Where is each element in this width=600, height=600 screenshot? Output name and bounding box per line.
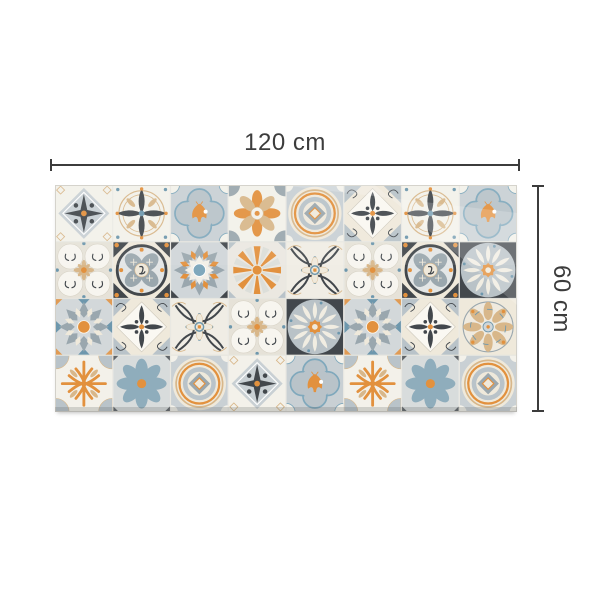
tile-rosette-orange <box>344 299 401 356</box>
tile-moth <box>278 347 352 412</box>
rug-tiles-svg <box>55 185 517 412</box>
tile-star-diamond <box>229 355 286 412</box>
tile-medallion <box>164 348 234 412</box>
tile-medallion <box>453 348 517 412</box>
tile-blue-daisy <box>402 355 459 412</box>
tile-diamond-scroll <box>402 299 459 356</box>
height-dimension-line <box>537 185 539 412</box>
tile-rosette-orange <box>56 299 113 356</box>
tile-cream-daisy <box>287 299 344 356</box>
width-dimension-tick-right <box>518 159 520 171</box>
tile-coral-cross <box>344 355 401 412</box>
tile-arcs-cross <box>171 299 228 356</box>
tile-diamond-scroll <box>113 299 170 356</box>
tile-coral-cross <box>56 355 113 412</box>
rug-bottom-shadow <box>55 407 517 412</box>
height-dimension-tick-bottom <box>532 410 544 412</box>
height-dimension: 60 cm <box>545 185 577 412</box>
tile-blue-daisy <box>113 355 170 412</box>
width-dimension-line <box>50 164 520 166</box>
tile-rug-image <box>55 185 517 412</box>
height-dimension-tick-top <box>532 185 544 187</box>
tile-fan-medallion <box>460 299 517 356</box>
tile-scroll-circles <box>229 299 286 356</box>
product-image: 120 cm <box>0 0 600 600</box>
width-dimension-label: 120 cm <box>50 129 520 157</box>
width-dimension-tick-left <box>50 159 52 171</box>
height-dimension-label: 60 cm <box>547 265 575 333</box>
